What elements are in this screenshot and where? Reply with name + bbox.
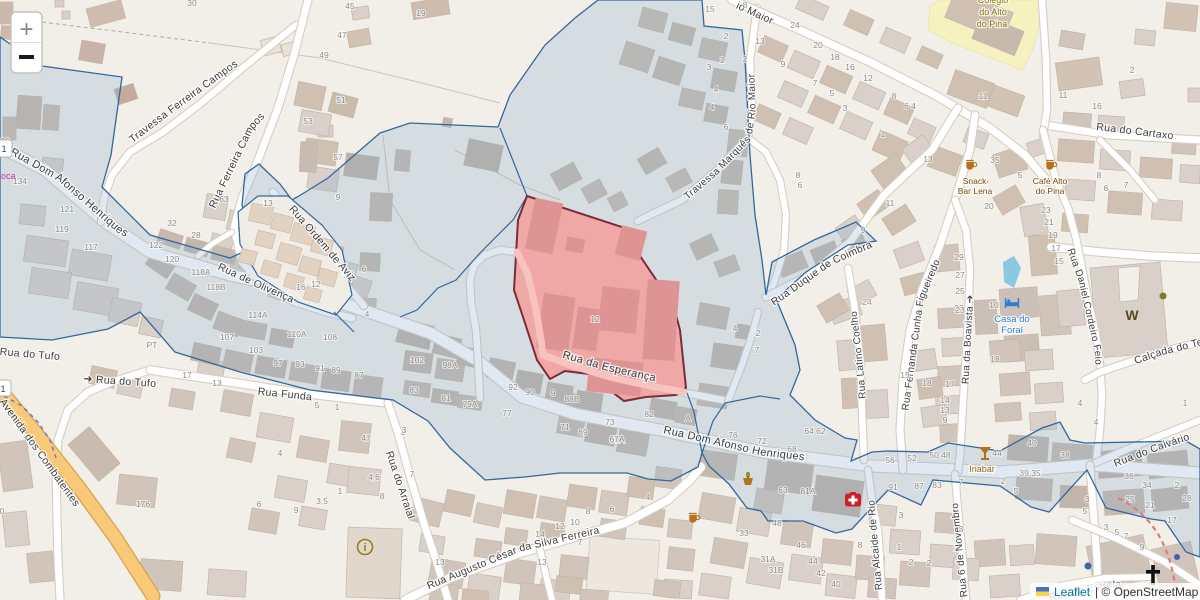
svg-text:7: 7 bbox=[813, 78, 818, 88]
svg-text:7: 7 bbox=[755, 345, 760, 355]
svg-text:3: 3 bbox=[959, 524, 964, 534]
svg-text:7: 7 bbox=[1124, 531, 1129, 541]
svg-text:108: 108 bbox=[323, 332, 337, 342]
svg-text:8: 8 bbox=[380, 491, 385, 501]
svg-text:47: 47 bbox=[361, 433, 371, 443]
svg-text:89: 89 bbox=[331, 365, 341, 375]
svg-text:36: 36 bbox=[1124, 471, 1134, 481]
svg-text:118A: 118A bbox=[191, 267, 211, 277]
svg-text:5: 5 bbox=[315, 400, 320, 410]
svg-text:2: 2 bbox=[724, 31, 729, 41]
svg-text:82: 82 bbox=[644, 409, 654, 419]
svg-text:79A: 79A bbox=[462, 399, 477, 409]
svg-text:Bar Lena: Bar Lena bbox=[958, 186, 993, 196]
svg-text:7: 7 bbox=[578, 537, 583, 547]
svg-text:46: 46 bbox=[796, 540, 806, 550]
svg-text:5: 5 bbox=[1083, 506, 1088, 516]
svg-text:122: 122 bbox=[149, 240, 163, 250]
svg-text:8: 8 bbox=[892, 91, 897, 101]
svg-text:do Pina: do Pina bbox=[977, 19, 1008, 29]
svg-text:5: 5 bbox=[1018, 170, 1023, 180]
svg-text:3: 3 bbox=[1104, 522, 1109, 532]
svg-text:8: 8 bbox=[586, 506, 591, 516]
svg-text:49: 49 bbox=[319, 50, 329, 60]
svg-text:| © OpenStreetMap: | © OpenStreetMap bbox=[1095, 585, 1199, 599]
svg-text:19: 19 bbox=[1048, 230, 1058, 240]
svg-text:28: 28 bbox=[191, 230, 201, 240]
svg-text:0: 0 bbox=[0, 506, 5, 516]
svg-text:93: 93 bbox=[295, 359, 305, 369]
svg-text:8: 8 bbox=[743, 0, 748, 10]
svg-text:13: 13 bbox=[435, 557, 445, 567]
svg-text:81: 81 bbox=[441, 393, 451, 403]
svg-text:Snack-: Snack- bbox=[963, 176, 990, 186]
svg-text:20: 20 bbox=[984, 201, 994, 211]
svg-text:20: 20 bbox=[813, 40, 823, 50]
svg-text:102: 102 bbox=[410, 355, 424, 365]
svg-text:7: 7 bbox=[1124, 180, 1129, 190]
svg-text:6: 6 bbox=[362, 264, 367, 274]
svg-text:176: 176 bbox=[136, 499, 150, 509]
svg-text:2: 2 bbox=[927, 558, 932, 568]
svg-text:5: 5 bbox=[1115, 527, 1120, 537]
svg-text:88B: 88B bbox=[564, 394, 579, 404]
svg-text:Café Alto: Café Alto bbox=[1033, 176, 1068, 186]
svg-text:77: 77 bbox=[502, 408, 512, 418]
svg-text:1: 1 bbox=[0, 384, 5, 394]
svg-text:4: 4 bbox=[710, 102, 715, 112]
svg-text:6 4: 6 4 bbox=[904, 101, 916, 111]
svg-text:69: 69 bbox=[578, 427, 588, 437]
svg-text:23: 23 bbox=[955, 305, 965, 315]
svg-text:63: 63 bbox=[219, 194, 229, 204]
svg-text:5: 5 bbox=[830, 88, 835, 98]
svg-text:44: 44 bbox=[992, 448, 1002, 458]
svg-text:91: 91 bbox=[888, 482, 898, 492]
svg-text:117: 117 bbox=[84, 242, 98, 252]
svg-text:3,5: 3,5 bbox=[316, 496, 328, 506]
svg-text:9: 9 bbox=[861, 225, 866, 235]
svg-text:92: 92 bbox=[508, 382, 518, 392]
svg-text:48: 48 bbox=[772, 518, 782, 528]
svg-text:7: 7 bbox=[959, 477, 964, 487]
svg-text:1: 1 bbox=[338, 486, 343, 496]
svg-text:44: 44 bbox=[808, 556, 818, 566]
svg-text:40: 40 bbox=[1027, 438, 1037, 448]
svg-text:17: 17 bbox=[1051, 243, 1061, 253]
svg-text:PT: PT bbox=[147, 340, 158, 350]
svg-text:110A: 110A bbox=[287, 329, 307, 339]
svg-text:4: 4 bbox=[733, 323, 738, 333]
svg-text:21: 21 bbox=[1044, 217, 1054, 227]
svg-text:83: 83 bbox=[409, 385, 419, 395]
svg-text:31A: 31A bbox=[760, 554, 775, 564]
svg-text:120: 120 bbox=[165, 254, 179, 264]
svg-text:+: + bbox=[19, 16, 33, 43]
svg-text:W: W bbox=[1125, 307, 1139, 323]
svg-text:6: 6 bbox=[257, 499, 262, 509]
svg-text:87: 87 bbox=[914, 481, 924, 491]
svg-text:4: 4 bbox=[278, 448, 283, 458]
svg-text:1: 1 bbox=[881, 129, 886, 139]
svg-text:45: 45 bbox=[345, 1, 355, 11]
svg-text:24: 24 bbox=[790, 20, 800, 30]
svg-text:4: 4 bbox=[365, 309, 370, 319]
svg-text:10: 10 bbox=[989, 300, 999, 310]
svg-text:40: 40 bbox=[831, 579, 841, 589]
svg-text:15: 15 bbox=[900, 370, 910, 380]
svg-text:19: 19 bbox=[416, 8, 426, 18]
svg-text:7: 7 bbox=[410, 469, 415, 479]
svg-text:Casa do: Casa do bbox=[994, 314, 1029, 325]
svg-text:9: 9 bbox=[943, 415, 948, 425]
svg-text:8: 8 bbox=[1097, 170, 1102, 180]
svg-text:51: 51 bbox=[336, 95, 346, 105]
svg-text:61A: 61A bbox=[800, 486, 815, 496]
svg-text:15: 15 bbox=[705, 4, 715, 14]
svg-text:6: 6 bbox=[724, 122, 729, 132]
svg-text:11: 11 bbox=[886, 198, 895, 208]
svg-text:38: 38 bbox=[1060, 450, 1070, 460]
svg-text:24: 24 bbox=[862, 297, 872, 307]
svg-text:21: 21 bbox=[1145, 500, 1155, 510]
svg-text:1: 1 bbox=[897, 542, 902, 552]
svg-text:11: 11 bbox=[979, 91, 988, 101]
svg-text:18: 18 bbox=[922, 378, 932, 388]
svg-text:9: 9 bbox=[1140, 542, 1145, 552]
svg-text:16: 16 bbox=[845, 62, 855, 72]
svg-text:28: 28 bbox=[1182, 493, 1192, 503]
svg-text:Foral: Foral bbox=[1001, 325, 1023, 336]
svg-text:11: 11 bbox=[1059, 90, 1068, 100]
svg-text:3: 3 bbox=[707, 62, 712, 72]
svg-text:3: 3 bbox=[843, 103, 848, 113]
svg-text:do Alto: do Alto bbox=[979, 7, 1007, 17]
svg-text:47: 47 bbox=[337, 30, 347, 40]
svg-text:16: 16 bbox=[296, 282, 306, 292]
svg-text:9: 9 bbox=[336, 192, 341, 202]
svg-text:68: 68 bbox=[787, 444, 797, 454]
svg-text:8: 8 bbox=[858, 540, 863, 550]
svg-text:34: 34 bbox=[1142, 480, 1152, 490]
svg-text:1: 1 bbox=[1, 144, 6, 154]
svg-text:33: 33 bbox=[739, 528, 749, 538]
svg-text:do Pina: do Pina bbox=[1036, 186, 1065, 196]
svg-text:67A: 67A bbox=[609, 434, 624, 444]
svg-text:2: 2 bbox=[756, 328, 761, 338]
svg-text:107: 107 bbox=[220, 332, 234, 342]
svg-text:Leaflet: Leaflet bbox=[1054, 585, 1091, 599]
svg-text:39 35: 39 35 bbox=[1019, 468, 1041, 478]
svg-text:76: 76 bbox=[728, 430, 738, 440]
svg-text:13: 13 bbox=[212, 378, 222, 388]
svg-text:29: 29 bbox=[954, 252, 964, 262]
svg-text:13: 13 bbox=[940, 405, 950, 415]
svg-text:57: 57 bbox=[333, 152, 343, 162]
svg-text:13: 13 bbox=[923, 154, 933, 164]
svg-text:14: 14 bbox=[940, 395, 950, 405]
svg-text:73: 73 bbox=[605, 417, 615, 427]
svg-text:17: 17 bbox=[1167, 515, 1177, 525]
svg-text:9: 9 bbox=[551, 388, 556, 398]
svg-text:12: 12 bbox=[863, 73, 873, 83]
svg-text:31B: 31B bbox=[768, 565, 783, 575]
svg-text:10: 10 bbox=[570, 517, 580, 527]
svg-text:3: 3 bbox=[1085, 494, 1090, 504]
svg-text:13: 13 bbox=[263, 198, 273, 208]
svg-text:oca: oca bbox=[1, 171, 16, 181]
svg-text:35: 35 bbox=[990, 155, 1000, 165]
svg-text:71: 71 bbox=[560, 422, 570, 432]
svg-text:27: 27 bbox=[955, 270, 965, 280]
svg-text:4: 4 bbox=[1078, 398, 1083, 408]
svg-text:13: 13 bbox=[537, 557, 547, 567]
svg-text:1: 1 bbox=[720, 55, 725, 65]
svg-text:87: 87 bbox=[354, 370, 364, 380]
svg-text:14: 14 bbox=[535, 529, 545, 539]
svg-text:3: 3 bbox=[402, 425, 407, 435]
svg-text:1: 1 bbox=[1183, 398, 1188, 408]
svg-text:4: 4 bbox=[1094, 417, 1099, 427]
svg-text:25: 25 bbox=[955, 286, 965, 296]
svg-text:2: 2 bbox=[1001, 476, 1006, 486]
svg-text:4: 4 bbox=[714, 84, 719, 94]
svg-text:98A: 98A bbox=[442, 360, 457, 370]
svg-text:12: 12 bbox=[311, 279, 321, 289]
svg-text:9: 9 bbox=[781, 59, 786, 69]
svg-text:23: 23 bbox=[1041, 205, 1051, 215]
svg-text:8: 8 bbox=[796, 170, 801, 180]
svg-text:72: 72 bbox=[757, 436, 767, 446]
svg-text:16: 16 bbox=[1092, 101, 1102, 111]
svg-text:1: 1 bbox=[335, 402, 340, 412]
svg-text:64 62: 64 62 bbox=[804, 426, 826, 436]
svg-text:12: 12 bbox=[590, 314, 600, 324]
svg-text:17: 17 bbox=[182, 370, 192, 380]
svg-text:119: 119 bbox=[55, 224, 69, 234]
svg-text:5: 5 bbox=[1014, 486, 1019, 496]
svg-text:2: 2 bbox=[1130, 65, 1135, 75]
svg-text:i: i bbox=[363, 542, 366, 554]
svg-text:6: 6 bbox=[798, 180, 803, 190]
svg-text:121: 121 bbox=[60, 204, 74, 214]
svg-text:13: 13 bbox=[755, 36, 765, 46]
svg-text:2: 2 bbox=[743, 54, 748, 64]
svg-text:118B: 118B bbox=[206, 282, 226, 292]
svg-text:90: 90 bbox=[525, 387, 535, 397]
svg-text:A: A bbox=[685, 413, 691, 423]
svg-text:83: 83 bbox=[932, 480, 942, 490]
svg-text:91: 91 bbox=[315, 363, 325, 373]
svg-text:63: 63 bbox=[778, 485, 788, 495]
svg-text:50 48: 50 48 bbox=[929, 450, 951, 460]
svg-text:97: 97 bbox=[273, 358, 283, 368]
svg-text:4: 4 bbox=[646, 492, 651, 502]
svg-text:42: 42 bbox=[816, 568, 826, 578]
svg-text:Colégio: Colégio bbox=[978, 0, 1009, 5]
svg-text:18: 18 bbox=[990, 354, 1000, 364]
svg-text:103: 103 bbox=[249, 345, 263, 355]
svg-text:2: 2 bbox=[909, 557, 914, 567]
svg-text:12: 12 bbox=[555, 521, 565, 531]
svg-text:32: 32 bbox=[167, 218, 177, 228]
svg-text:Inabar: Inabar bbox=[969, 464, 995, 474]
svg-text:114A: 114A bbox=[248, 310, 268, 320]
svg-text:2: 2 bbox=[1175, 480, 1180, 490]
svg-text:18: 18 bbox=[830, 52, 840, 62]
svg-text:6: 6 bbox=[610, 504, 615, 514]
svg-text:17: 17 bbox=[945, 379, 955, 389]
svg-text:9: 9 bbox=[294, 505, 299, 515]
svg-text:6: 6 bbox=[1104, 183, 1109, 193]
svg-text:3: 3 bbox=[899, 510, 904, 520]
svg-text:53: 53 bbox=[303, 116, 313, 126]
svg-text:30: 30 bbox=[187, 0, 197, 8]
svg-text:56: 56 bbox=[885, 455, 895, 465]
svg-text:4,6: 4,6 bbox=[368, 472, 380, 482]
svg-text:15: 15 bbox=[1054, 256, 1064, 266]
svg-text:52: 52 bbox=[907, 453, 917, 463]
